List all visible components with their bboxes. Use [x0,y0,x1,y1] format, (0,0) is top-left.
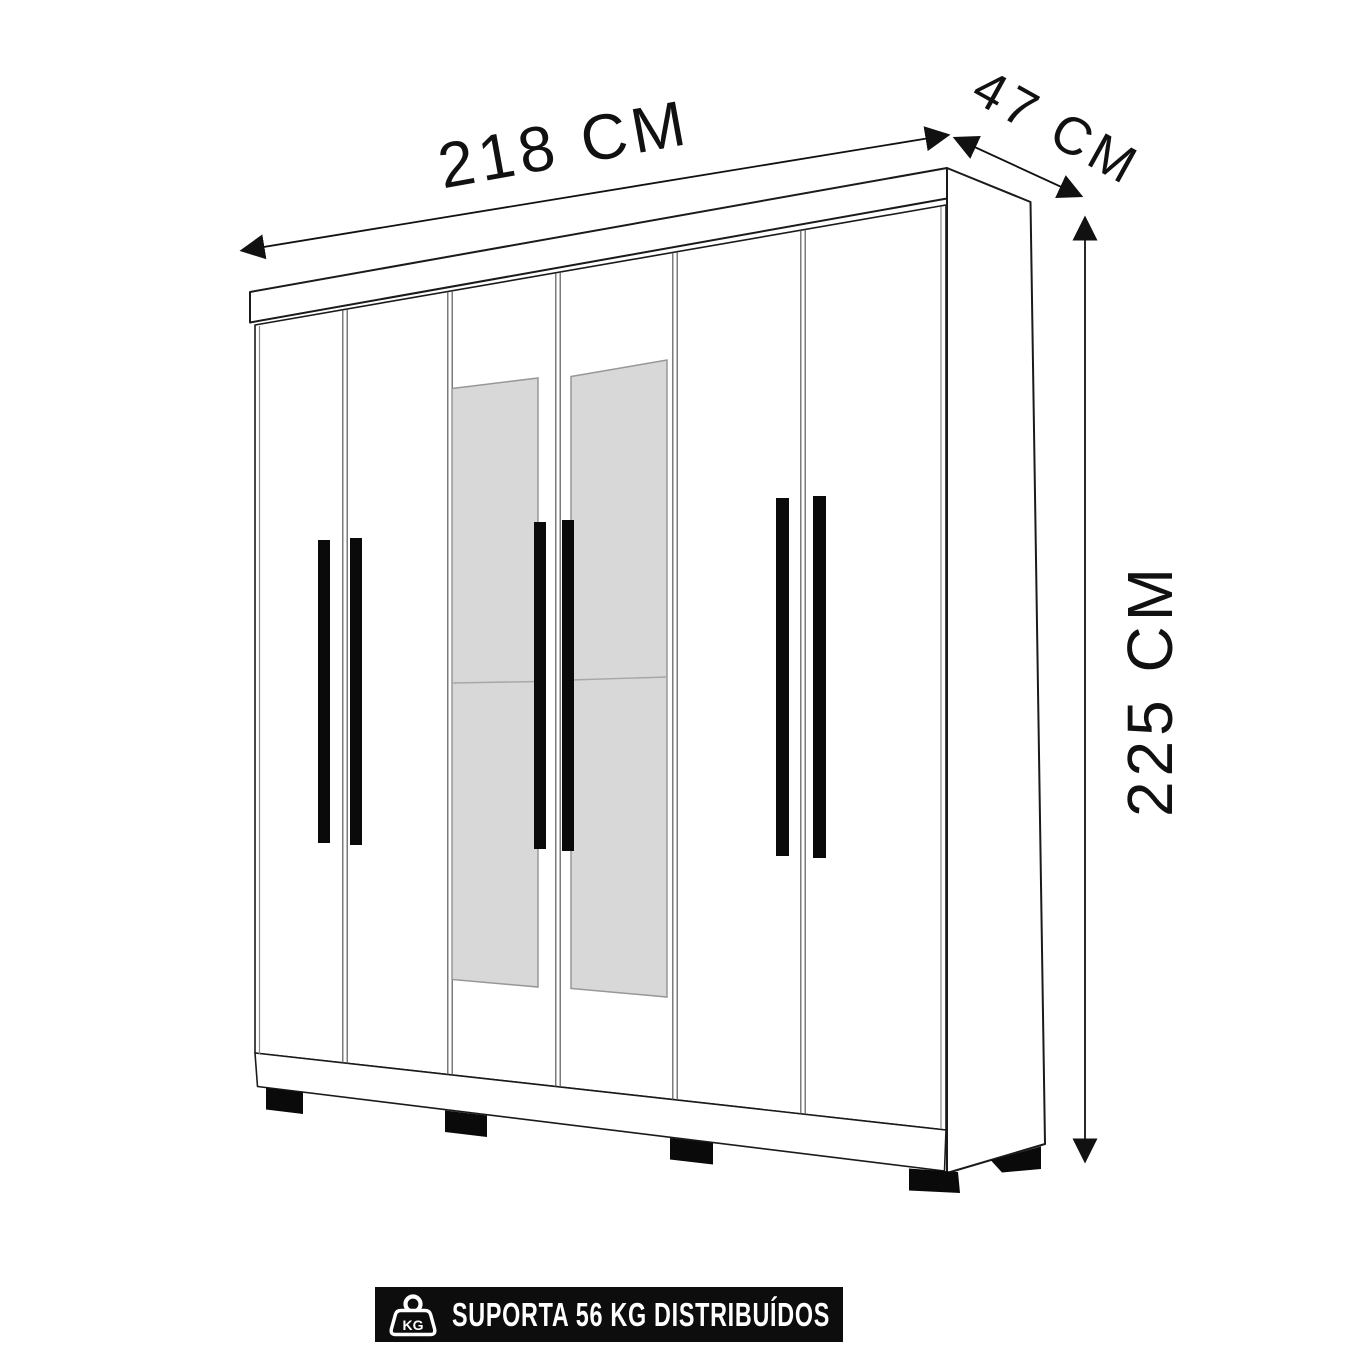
door-handle [776,498,789,856]
wardrobe-drawing [250,168,1045,1193]
door-handle [350,538,362,845]
door-handle [562,520,574,851]
door-handle [318,540,330,843]
width-dimension-label: 218 CM [432,86,695,202]
depth-dimension: 47 CM [955,58,1150,197]
door-handle [813,496,826,858]
wardrobe-dimension-diagram: 218 CM 47 CM 225 CM KG SUPORTA 56 KG DIS… [0,0,1350,1350]
kg-icon-label: KG [403,1317,424,1333]
wardrobe-side-panel [947,168,1045,1173]
product-dimension-diagram: 218 CM 47 CM 225 CM KG SUPORTA 56 KG DIS… [0,0,1350,1350]
support-banner: KG SUPORTA 56 KG DISTRIBUÍDOS [375,1287,843,1342]
door-handle [534,522,546,849]
foot [909,1169,960,1194]
height-dimension: 225 CM [1085,218,1186,1161]
support-banner-text: SUPORTA 56 KG DISTRIBUÍDOS [452,1296,830,1333]
foot [266,1088,303,1114]
height-dimension-label: 225 CM [1114,563,1186,817]
depth-dimension-label: 47 CM [963,58,1150,197]
